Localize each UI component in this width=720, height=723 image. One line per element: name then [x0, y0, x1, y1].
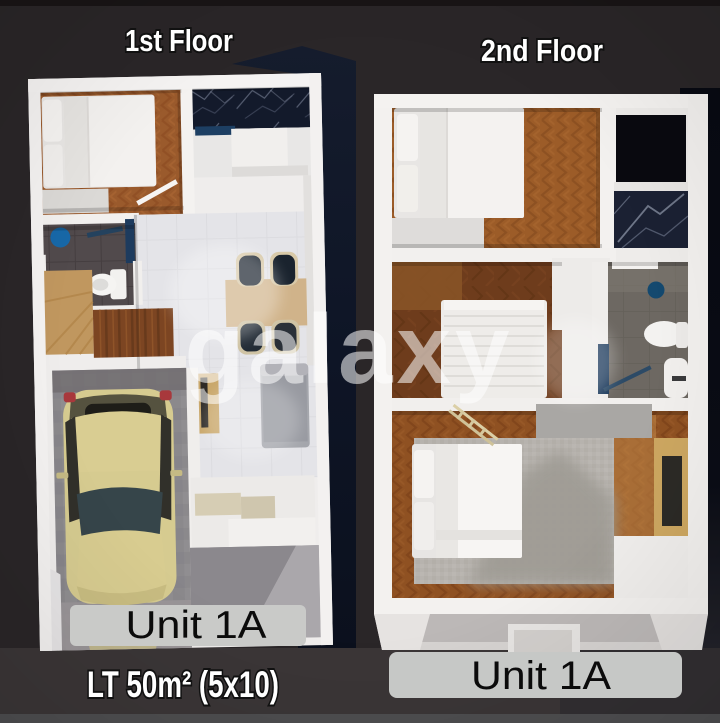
- svg-text:LT 50m² (5x10): LT 50m² (5x10): [87, 664, 279, 705]
- svg-text:2nd Floor: 2nd Floor: [481, 34, 603, 68]
- svg-text:galaxy: galaxy: [184, 294, 513, 404]
- svg-text:Unit 1A: Unit 1A: [471, 654, 611, 698]
- svg-text:Unit 1A: Unit 1A: [126, 604, 267, 647]
- svg-text:1st Floor: 1st Floor: [125, 24, 233, 58]
